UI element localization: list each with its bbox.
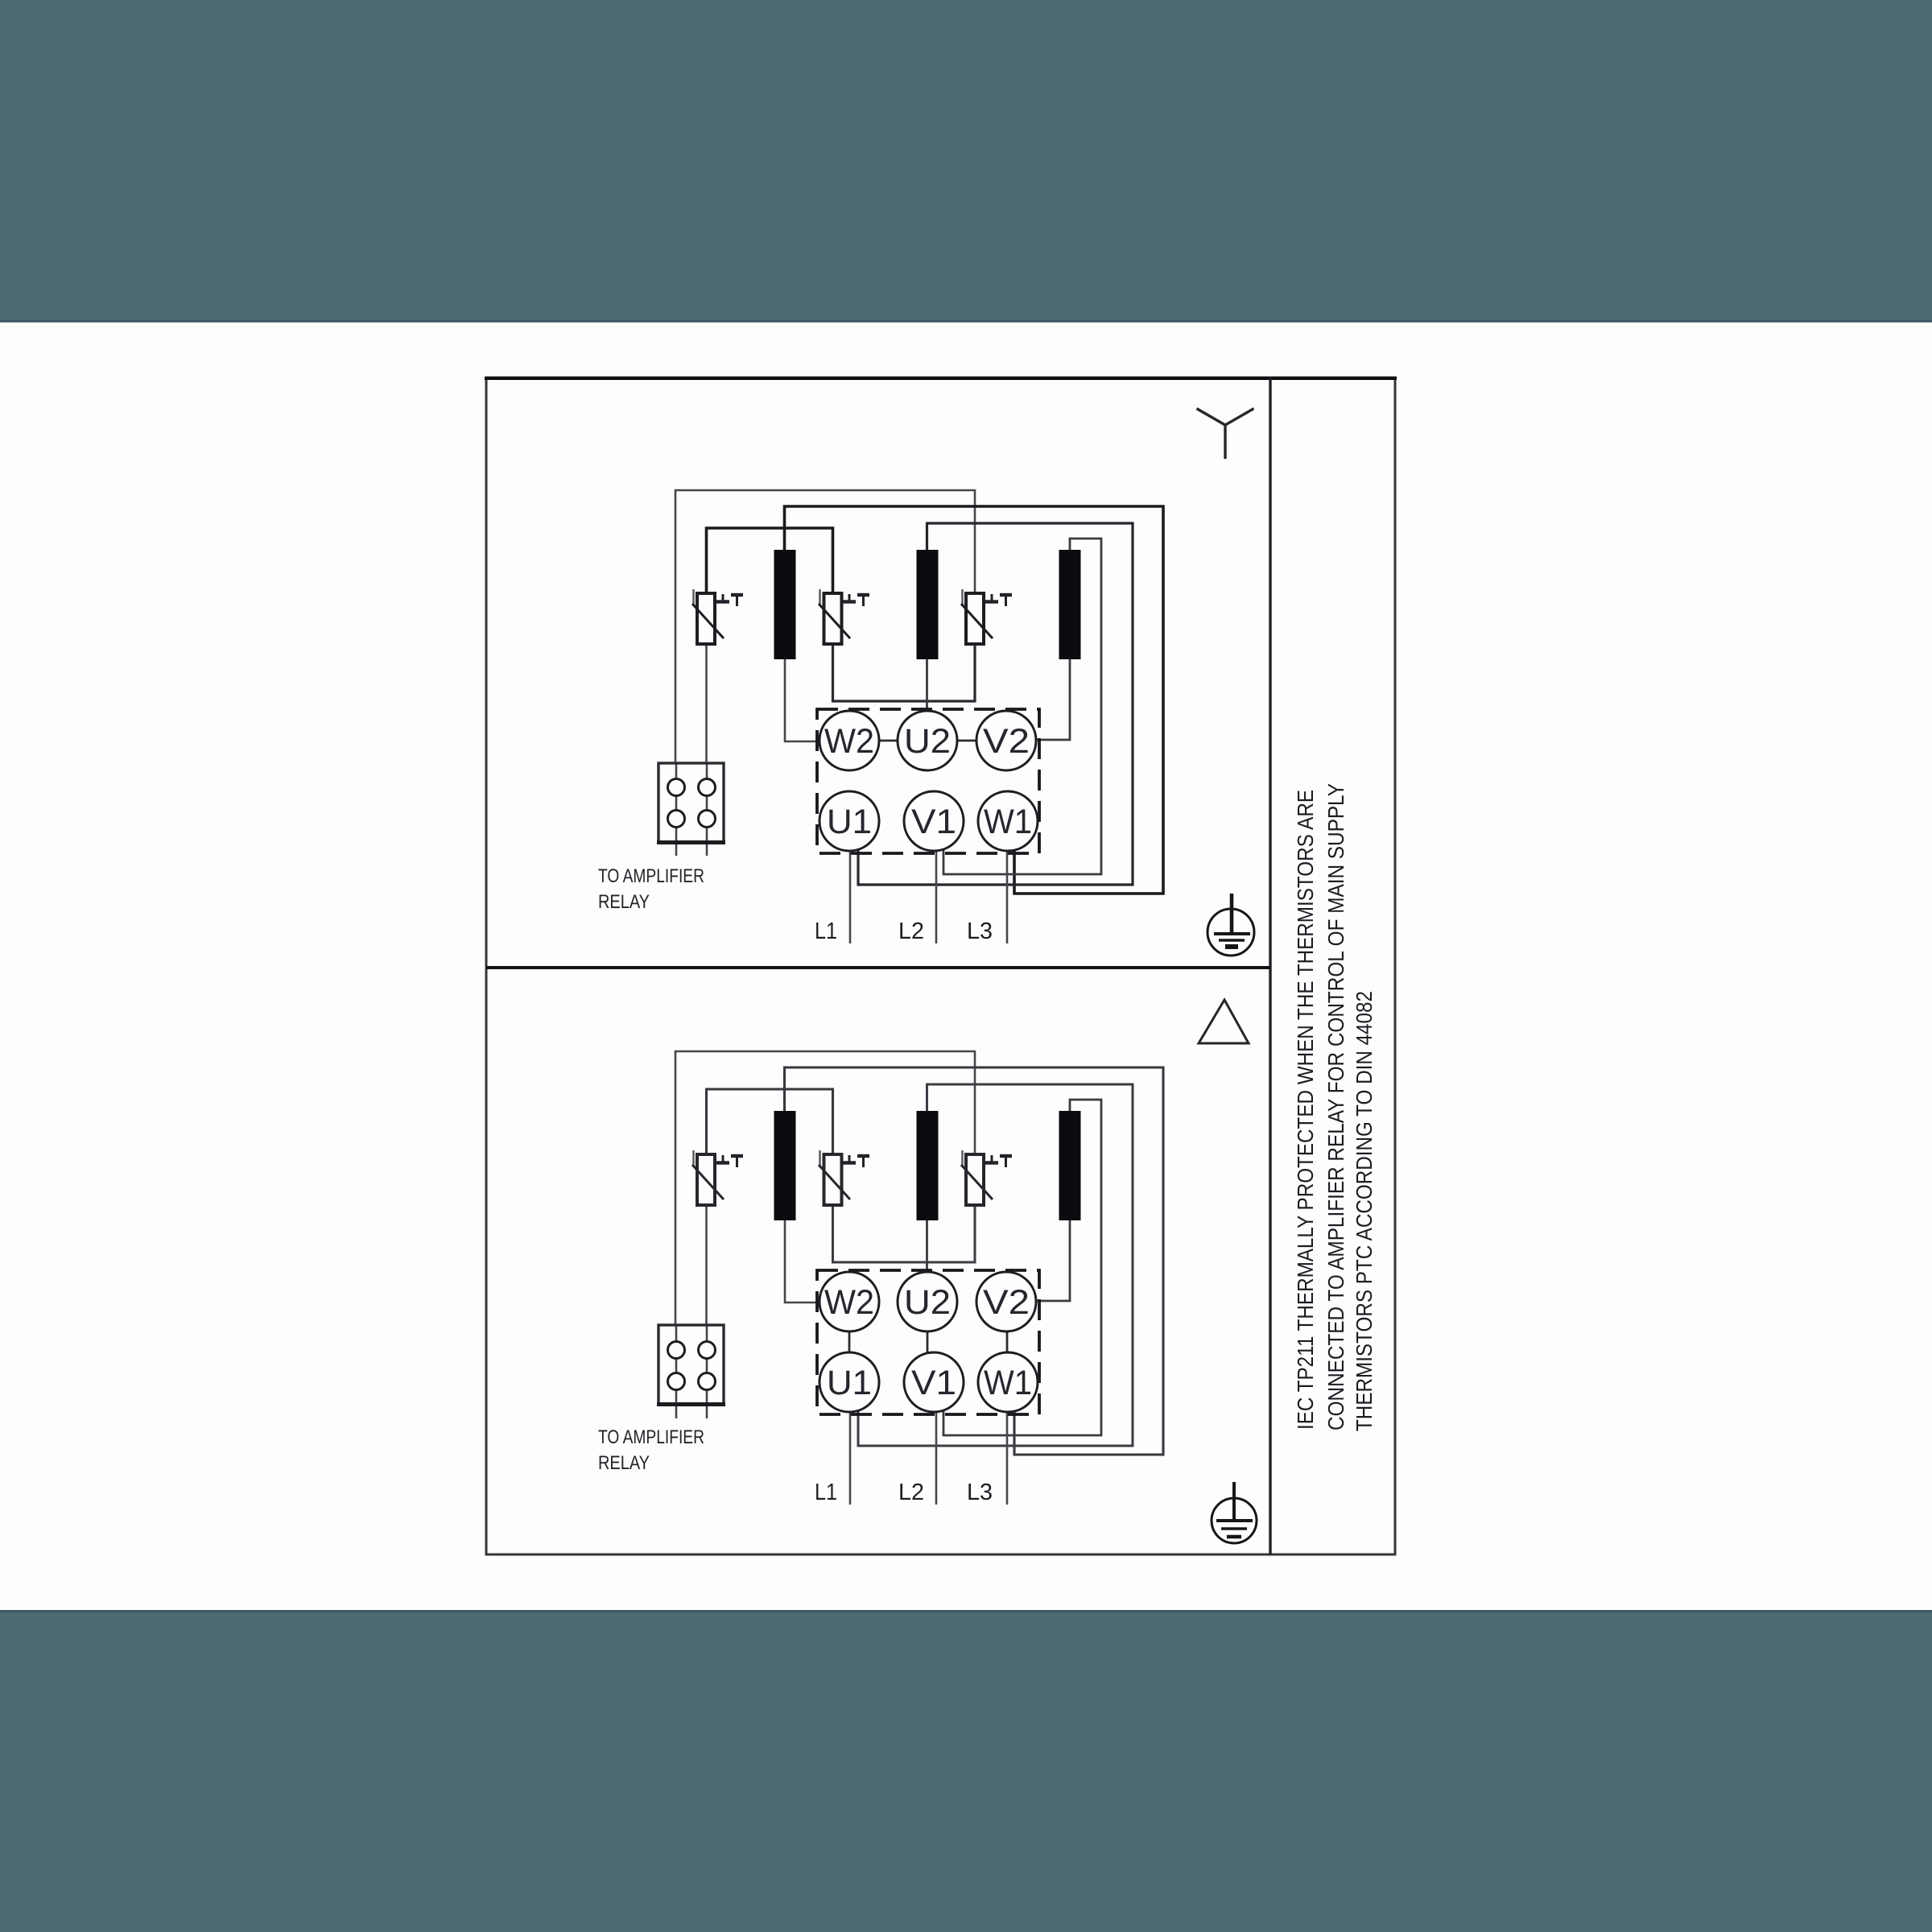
svg-text:IEC TP211 THERMALLY PROTECTED: IEC TP211 THERMALLY PROTECTED WHEN THE T… [1293, 790, 1318, 1430]
svg-text:U2: U2 [904, 722, 951, 761]
svg-text:RELAY: RELAY [598, 891, 650, 913]
svg-text:V1: V1 [911, 803, 956, 841]
svg-text:TO AMPLIFIER: TO AMPLIFIER [598, 1426, 704, 1448]
svg-text:W2: W2 [824, 722, 874, 761]
svg-text:W1: W1 [984, 1364, 1032, 1402]
svg-text:L1: L1 [815, 1480, 837, 1505]
svg-text:U1: U1 [827, 803, 872, 841]
svg-text:V1: V1 [911, 1364, 956, 1402]
svg-text:L3: L3 [967, 919, 993, 944]
svg-text:V2: V2 [983, 722, 1030, 761]
svg-text:U2: U2 [904, 1283, 951, 1322]
svg-text:RELAY: RELAY [598, 1452, 650, 1474]
svg-text:CONNECTED TO AMPLIFIER RELAY F: CONNECTED TO AMPLIFIER RELAY FOR CONTROL… [1323, 783, 1348, 1430]
svg-text:L2: L2 [898, 919, 924, 944]
svg-text:L2: L2 [898, 1480, 924, 1505]
svg-text:U1: U1 [827, 1364, 872, 1402]
svg-text:W2: W2 [824, 1283, 874, 1322]
svg-text:L1: L1 [815, 919, 837, 944]
svg-text:TO AMPLIFIER: TO AMPLIFIER [598, 865, 704, 887]
svg-text:V2: V2 [983, 1283, 1030, 1322]
svg-text:L3: L3 [967, 1480, 993, 1505]
svg-text:THERMISTORS PTC ACCORDING TO D: THERMISTORS PTC ACCORDING TO DIN 44082 [1352, 991, 1377, 1431]
svg-text:W1: W1 [984, 803, 1032, 841]
